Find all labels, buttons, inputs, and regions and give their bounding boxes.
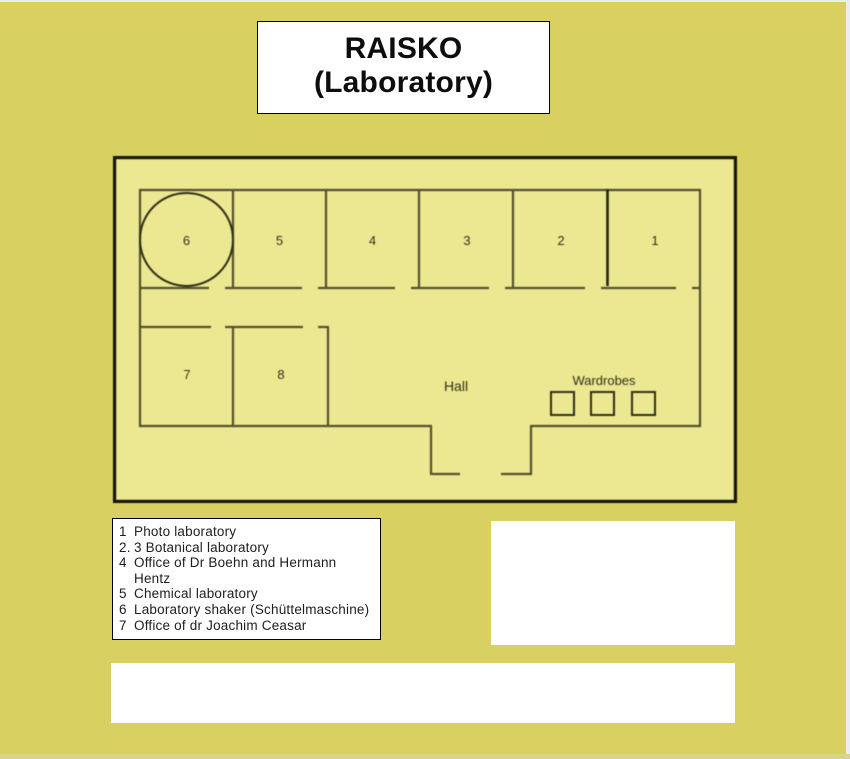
svg-text:6: 6 (183, 233, 190, 248)
svg-text:7: 7 (183, 367, 190, 382)
svg-text:8: 8 (277, 367, 284, 382)
svg-text:4: 4 (369, 233, 376, 248)
svg-text:Hall: Hall (444, 378, 468, 394)
svg-text:3: 3 (463, 233, 470, 248)
svg-text:2: 2 (557, 233, 564, 248)
svg-text:5: 5 (276, 233, 283, 248)
svg-text:1: 1 (651, 233, 658, 248)
svg-text:Wardrobes: Wardrobes (572, 373, 636, 388)
